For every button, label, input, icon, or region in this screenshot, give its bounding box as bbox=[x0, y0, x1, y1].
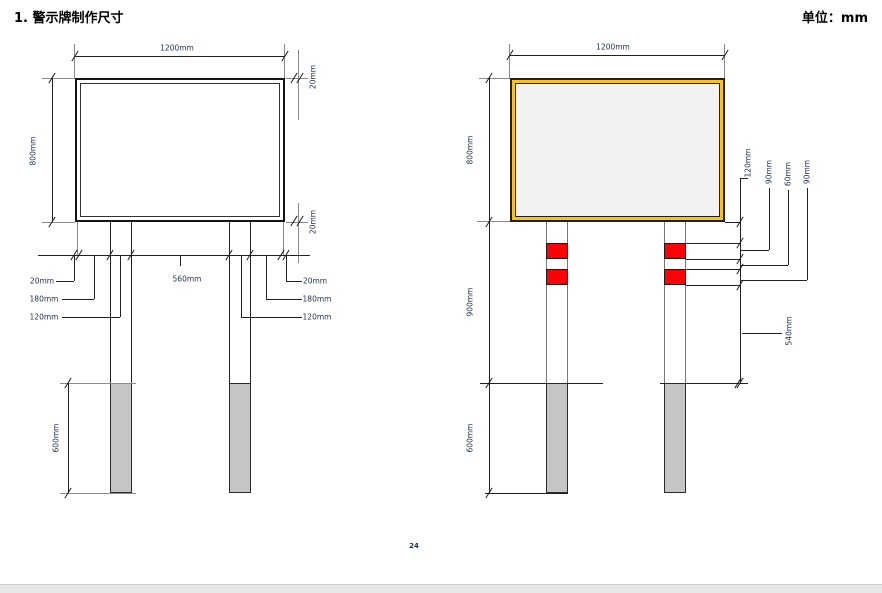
extension-line bbox=[42, 78, 75, 79]
extension-line bbox=[74, 44, 75, 78]
leader-line bbox=[241, 317, 302, 318]
leader-line bbox=[241, 255, 242, 317]
dim-label-width: 1200mm bbox=[160, 44, 194, 53]
extension-line bbox=[298, 50, 299, 120]
dim-label-width: 1200mm bbox=[596, 43, 630, 52]
page-number: 24 bbox=[404, 542, 424, 550]
extension-line bbox=[686, 285, 740, 286]
post-outline bbox=[229, 222, 230, 383]
buried-post bbox=[229, 383, 251, 493]
dim-label-edge-right: 20mm bbox=[303, 277, 327, 286]
dim-label-band1: 90mm bbox=[765, 160, 774, 184]
dim-line bbox=[75, 56, 285, 57]
dim-label-offset-left: 180mm bbox=[30, 295, 59, 304]
dim-label-above-ground: 900mm bbox=[466, 288, 475, 317]
dim-label-post-width-right: 120mm bbox=[303, 313, 332, 322]
buried-post bbox=[664, 383, 686, 493]
left-sign-board-inner-frame bbox=[80, 83, 280, 217]
ground-line bbox=[60, 383, 136, 384]
dim-label-band2: 90mm bbox=[803, 160, 812, 184]
leader-line bbox=[286, 281, 302, 282]
leader-line bbox=[62, 299, 94, 300]
extension-line bbox=[724, 44, 725, 78]
leader-line bbox=[788, 190, 789, 265]
right-sign-board-face bbox=[515, 83, 720, 217]
extension-line bbox=[485, 493, 568, 494]
page-bottom-edge bbox=[0, 584, 882, 593]
leader-line bbox=[769, 188, 770, 250]
dim-label-band-to-ground: 540mm bbox=[785, 317, 794, 346]
extension-line bbox=[477, 221, 510, 222]
extension-line bbox=[509, 44, 510, 78]
dim-label-post-width-left: 120mm bbox=[30, 313, 59, 322]
dim-line bbox=[489, 78, 490, 493]
extension-line bbox=[686, 259, 740, 260]
extension-line bbox=[286, 78, 308, 79]
extension-line bbox=[42, 222, 75, 223]
reflective-band-red bbox=[546, 243, 568, 259]
dim-label-edge-left: 20mm bbox=[30, 277, 54, 286]
leader-line bbox=[56, 281, 74, 282]
leader-line bbox=[740, 280, 807, 281]
reflective-band-red bbox=[664, 269, 686, 285]
extension-line bbox=[298, 203, 299, 263]
post-outline bbox=[250, 222, 251, 383]
dim-label-height: 800mm bbox=[29, 137, 38, 166]
leader-line bbox=[286, 255, 287, 281]
buried-post bbox=[110, 383, 132, 493]
leader-line bbox=[266, 255, 267, 299]
leader-line bbox=[62, 317, 120, 318]
leader-line bbox=[266, 299, 302, 300]
dim-line bbox=[510, 55, 725, 56]
dim-label-border-top: 20mm bbox=[309, 65, 318, 89]
drawing-page: 1. 警示牌制作尺寸 单位：mm 1200mm 800mm 20mm 20mm … bbox=[0, 0, 882, 593]
dim-label-band-offset: 120mm bbox=[744, 149, 753, 178]
dim-label-post-spacing: 560mm bbox=[173, 275, 202, 284]
extension-line bbox=[479, 78, 510, 79]
leader-line bbox=[74, 255, 75, 281]
post-outline bbox=[131, 222, 132, 383]
post-outline bbox=[110, 222, 111, 383]
dim-label-height: 800mm bbox=[466, 136, 475, 165]
center-mark bbox=[180, 255, 181, 266]
leader-line bbox=[740, 250, 769, 251]
reflective-band-red bbox=[664, 243, 686, 259]
dim-label-buried-depth: 600mm bbox=[466, 424, 475, 453]
extension-line bbox=[686, 269, 740, 270]
dim-label-buried-depth: 600mm bbox=[52, 424, 61, 453]
dim-line bbox=[68, 383, 69, 493]
extension-line bbox=[284, 44, 285, 78]
dim-line bbox=[52, 78, 53, 222]
page-title: 1. 警示牌制作尺寸 bbox=[14, 7, 124, 26]
leader-line bbox=[742, 333, 782, 334]
leader-line bbox=[740, 178, 748, 179]
extension-line bbox=[60, 493, 136, 494]
reflective-band-red bbox=[546, 269, 568, 285]
dim-label-offset-right: 180mm bbox=[303, 295, 332, 304]
ground-line bbox=[480, 383, 603, 384]
unit-label: 单位：mm bbox=[756, 7, 868, 26]
leader-line bbox=[740, 265, 788, 266]
extension-line bbox=[686, 243, 740, 244]
leader-line bbox=[94, 255, 95, 299]
dim-label-band-gap: 60mm bbox=[784, 162, 793, 186]
leader-line bbox=[807, 188, 808, 280]
dim-label-border-bottom: 20mm bbox=[309, 210, 318, 234]
leader-line bbox=[120, 255, 121, 317]
buried-post bbox=[546, 383, 568, 493]
